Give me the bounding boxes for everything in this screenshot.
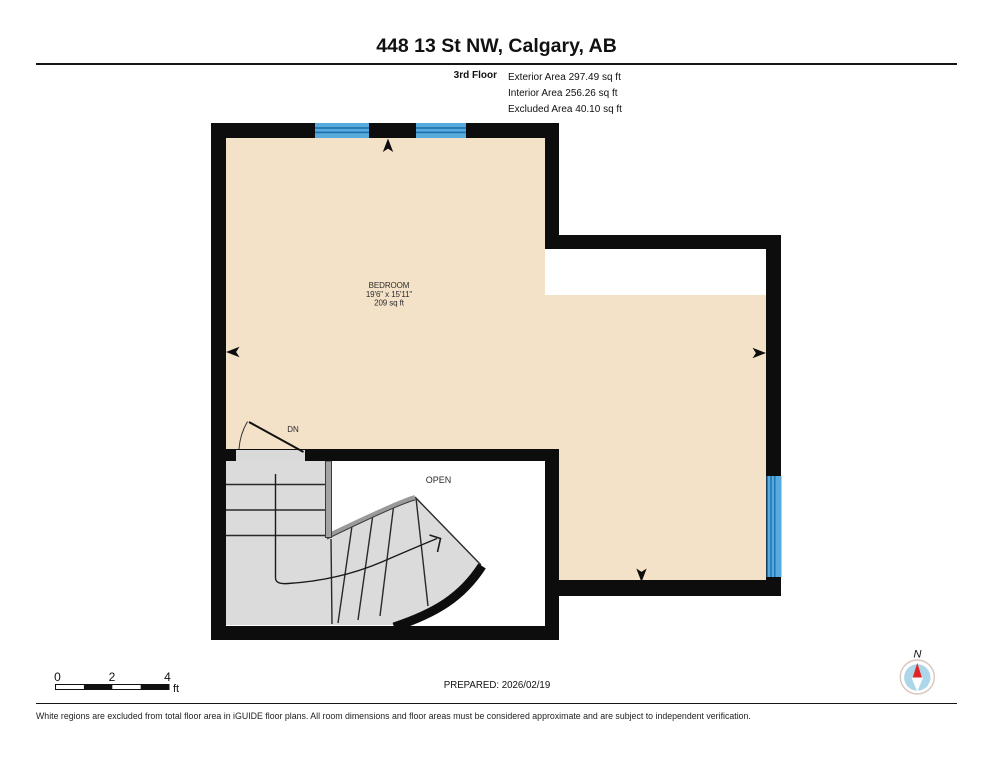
svg-text:DN: DN — [287, 425, 299, 434]
svg-text:N: N — [914, 649, 922, 661]
svg-text:ft: ft — [173, 683, 179, 695]
svg-text:PREPARED: 2026/02/19: PREPARED: 2026/02/19 — [444, 680, 550, 691]
svg-text:4: 4 — [164, 670, 171, 684]
svg-text:2: 2 — [109, 670, 116, 684]
svg-text:OPEN: OPEN — [426, 475, 452, 485]
svg-text:0: 0 — [54, 670, 61, 684]
svg-text:BEDROOM: BEDROOM — [369, 281, 410, 290]
svg-text:209 sq ft: 209 sq ft — [374, 299, 405, 308]
